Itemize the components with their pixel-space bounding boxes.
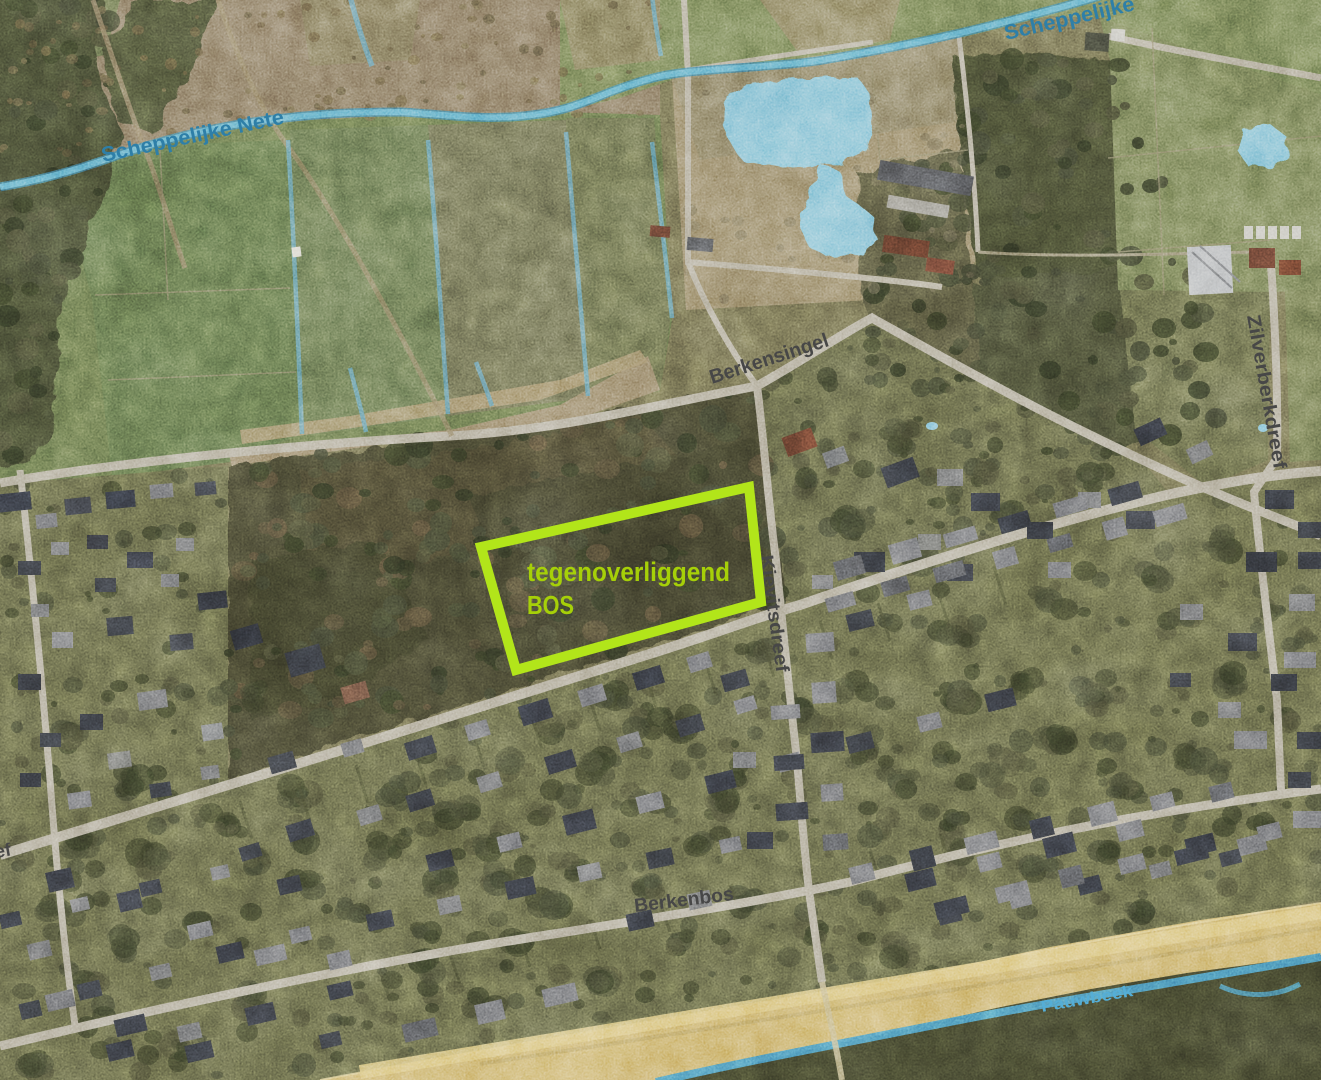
svg-text:BOS: BOS xyxy=(527,590,574,620)
svg-text:tegenoverliggend: tegenoverliggend xyxy=(527,557,730,587)
